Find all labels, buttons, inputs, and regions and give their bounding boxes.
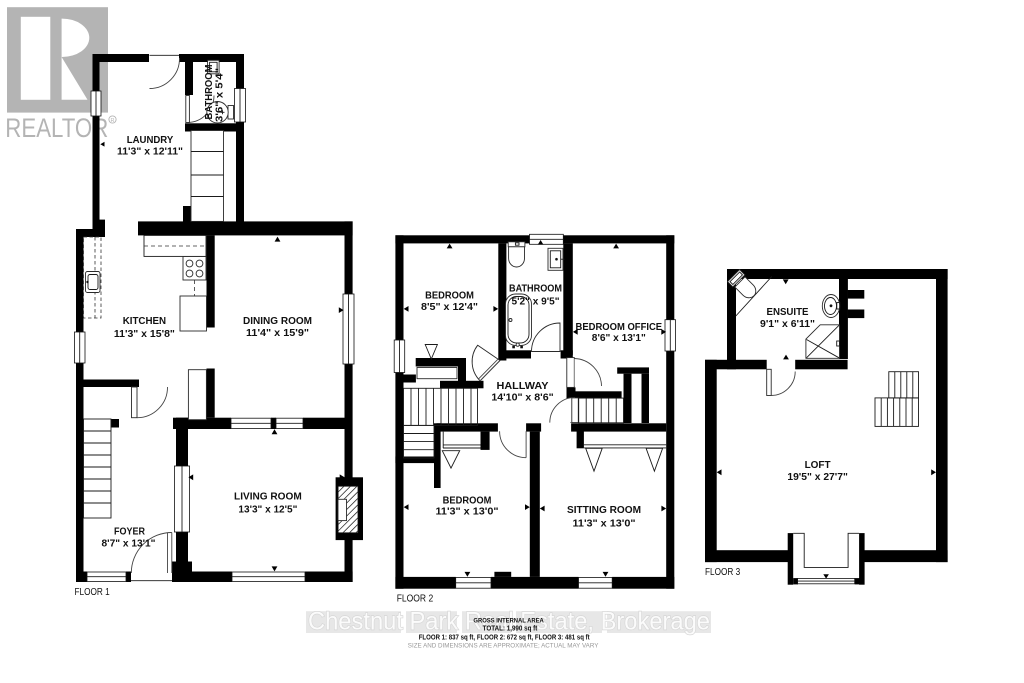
svg-text:BATHROOM: BATHROOM [204,64,215,119]
svg-text:14'10" x 8'6": 14'10" x 8'6" [491,393,553,404]
svg-text:5'2" x 9'5": 5'2" x 9'5" [512,297,560,308]
svg-text:LOFT: LOFT [805,460,832,471]
svg-text:FLOOR 1: FLOOR 1 [75,587,110,598]
svg-text:8'6" x 13'1": 8'6" x 13'1" [592,333,646,344]
svg-text:SITTING ROOM: SITTING ROOM [567,505,641,516]
svg-text:FOYER: FOYER [114,527,145,538]
svg-text:R: R [111,118,115,124]
svg-text:FLOOR 1: 837 sq ft, FLOOR 2: 6: FLOOR 1: 837 sq ft, FLOOR 2: 672 sq ft, … [419,633,590,642]
svg-text:LIVING ROOM: LIVING ROOM [234,492,302,503]
svg-text:8'5" x 12'4": 8'5" x 12'4" [421,302,478,313]
svg-text:19'5" x 27'7": 19'5" x 27'7" [787,472,848,483]
svg-text:BEDROOM OFFICE: BEDROOM OFFICE [576,322,663,333]
svg-text:9'1" x 6'11": 9'1" x 6'11" [760,319,815,330]
svg-text:11'3" x 13'0": 11'3" x 13'0" [573,519,636,530]
svg-text:11'4" x 15'9": 11'4" x 15'9" [246,328,309,339]
svg-text:DINING ROOM: DINING ROOM [243,316,312,327]
svg-text:LAUNDRY: LAUNDRY [127,135,174,146]
svg-text:11'3" x 13'0": 11'3" x 13'0" [436,507,499,518]
svg-text:FLOOR 2: FLOOR 2 [397,593,434,604]
svg-text:SIZE AND DIMENSIONS ARE APPROX: SIZE AND DIMENSIONS ARE APPROXIMATE; ACT… [408,643,599,650]
svg-text:3'6" x 5'4": 3'6" x 5'4" [214,68,225,122]
svg-text:13'3" x 12'5": 13'3" x 12'5" [238,504,297,515]
svg-text:BEDROOM: BEDROOM [443,496,492,507]
svg-text:HALLWAY: HALLWAY [497,381,549,392]
svg-text:KITCHEN: KITCHEN [123,316,166,327]
svg-text:11'3" x 15'8": 11'3" x 15'8" [114,329,175,340]
svg-text:BATHROOM: BATHROOM [509,284,562,295]
svg-text:BEDROOM: BEDROOM [425,291,474,302]
svg-text:ENSUITE: ENSUITE [767,307,809,318]
svg-text:8'7" x 13'1": 8'7" x 13'1" [102,539,156,550]
svg-text:FLOOR 3: FLOOR 3 [705,567,741,578]
svg-text:TOTAL: 1,990 sq ft: TOTAL: 1,990 sq ft [483,624,538,633]
svg-text:11'3" x 12'11": 11'3" x 12'11" [117,146,183,157]
